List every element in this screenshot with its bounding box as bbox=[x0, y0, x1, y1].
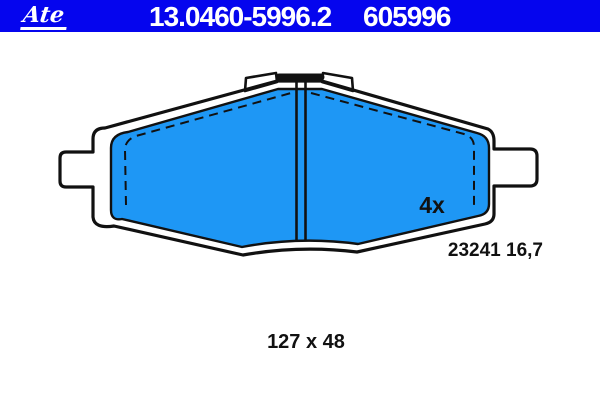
quantity-label: 4x bbox=[419, 192, 445, 218]
dimensions-label: 127 x 48 bbox=[267, 331, 345, 353]
brake-pad-diagram: 4x 23241 16,7 127 x 48 bbox=[0, 0, 600, 400]
product-image-page: Ate 13.0460-5996.2 605996 4x 23241 16,7 … bbox=[0, 0, 600, 400]
wva-thickness-label: 23241 16,7 bbox=[448, 240, 543, 261]
